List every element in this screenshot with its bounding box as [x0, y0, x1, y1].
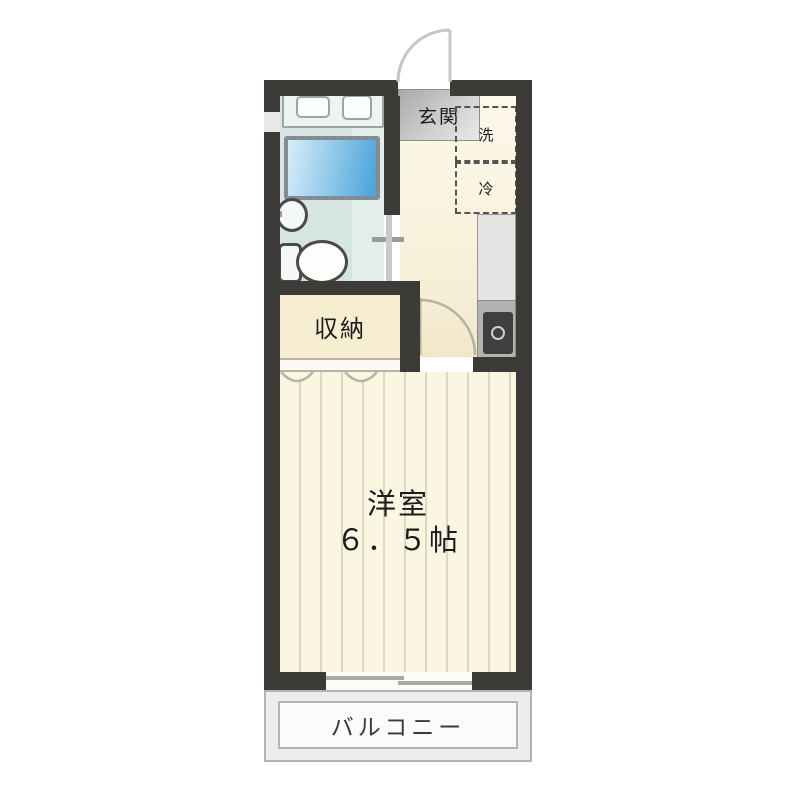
washer-space: 洗: [455, 106, 517, 162]
entrance-door: [392, 26, 458, 88]
wall-bottom-left: [264, 672, 326, 690]
wall-bath-closet: [264, 281, 420, 295]
wall-left: [264, 80, 280, 690]
main-room-size: ６．５帖: [336, 522, 460, 558]
main-room-door: [416, 296, 478, 358]
closet-door-track: [280, 358, 402, 372]
closet-area: 収納: [280, 295, 400, 358]
main-room-name: 洋室: [367, 486, 429, 522]
stove-pane: [477, 300, 516, 358]
floor-plan: 玄関 洗 冷 収納 洋室 ６．５帖: [0, 0, 800, 800]
bathtub: [284, 136, 380, 200]
left-wall-vent-window: [264, 112, 280, 132]
wall-closet-right: [400, 281, 420, 372]
wall-bath-entry-thin: [386, 215, 392, 281]
closet-folding-doors: [279, 371, 381, 391]
window-pane-right: [398, 681, 472, 685]
wall-hall-bottom: [473, 357, 532, 372]
entrance-label: 玄関: [418, 102, 460, 129]
counter-sink-basin: [296, 96, 330, 118]
balcony-band: バルコニー: [278, 701, 518, 749]
window-pane-left: [326, 676, 404, 680]
wall-right: [516, 80, 532, 690]
fridge-label: 冷: [478, 178, 493, 199]
wall-top-right: [450, 80, 532, 96]
burner-icon: [491, 326, 505, 340]
counter-drainer: [342, 95, 372, 120]
wall-bottom-right: [472, 672, 532, 690]
washer-label: 洗: [478, 124, 493, 145]
toilet-bowl: [296, 240, 348, 284]
fridge-space: 冷: [455, 162, 517, 214]
closet-label: 収納: [314, 309, 366, 344]
stove-burner-icon: [483, 312, 513, 354]
main-room-label: 洋室 ６．５帖: [280, 480, 516, 564]
wall-top-left: [264, 80, 398, 96]
wall-bath-entry: [384, 96, 400, 215]
balcony-label: バルコニー: [331, 708, 466, 742]
